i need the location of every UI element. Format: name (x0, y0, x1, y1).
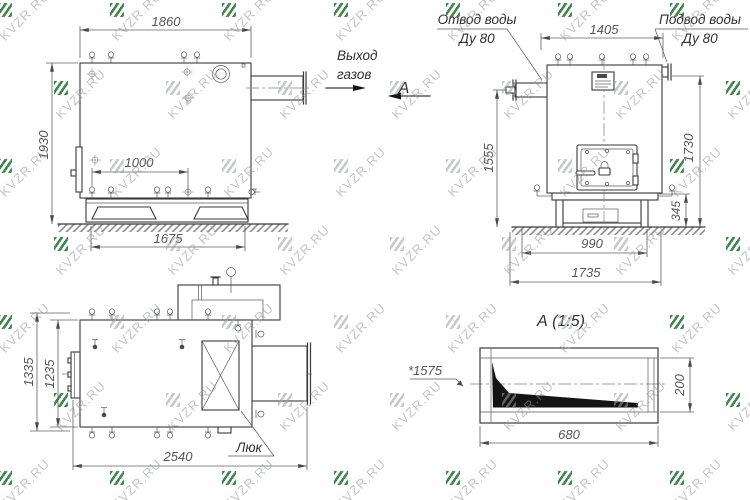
dim-front-base-height: 345 (669, 201, 683, 221)
water-inlet-label-1: Подвод воды (659, 12, 741, 27)
dim-front-overall-width: 1735 (572, 265, 602, 280)
dim-front-left-height: 1555 (481, 143, 496, 173)
valve-icon (154, 309, 160, 320)
valve-icon (89, 427, 95, 438)
water-outlet-label-1: Отвод воды (438, 12, 517, 27)
nameplate (592, 72, 614, 90)
front-view: Отвод воды Ду 80 Подвод воды Ду 80 1405 … (437, 12, 748, 286)
annotations: Выход газов А (326, 48, 430, 100)
gas-flow-arrow-icon (353, 85, 366, 91)
dim-detail-ref: *1575 (408, 363, 443, 378)
dim-side-height: 1930 (36, 130, 51, 160)
valve-icon (109, 427, 115, 438)
valve-icon (181, 52, 187, 63)
valve-icon (109, 309, 115, 320)
door-handle (576, 171, 595, 175)
valve-icon (643, 54, 649, 65)
side-view: 1860 1930 1000 1675 (36, 14, 312, 251)
dim-side-base: 1675 (154, 231, 184, 246)
drawing-page: 1860 1930 1000 1675 Выход газов А (0, 0, 750, 500)
valve-icon (567, 54, 573, 65)
drawing-canvas: 1860 1930 1000 1675 Выход газов А (0, 0, 750, 500)
valve-icon (534, 185, 540, 196)
valve-icon (167, 427, 173, 438)
valve-icon (154, 427, 160, 438)
valve-icon (89, 309, 95, 320)
dim-plan-body-width: 1235 (42, 359, 57, 389)
dim-plan-overall-width: 1335 (21, 357, 36, 387)
furnace-door (576, 145, 638, 190)
ground-hatch (512, 227, 705, 235)
detail-view: А (1:5) *1575 680 200 (408, 313, 694, 447)
hatch-label: Люк (235, 440, 262, 455)
hatch (202, 341, 239, 410)
dim-side-span: 1000 (125, 155, 155, 170)
grate-wedge (492, 362, 638, 408)
dim-front-width: 1405 (590, 22, 620, 37)
dim-plan-length: 2540 (163, 449, 194, 464)
dim-detail-height: 200 (672, 373, 687, 396)
valve-icon (555, 54, 561, 65)
water-inlet-label-2: Ду 80 (680, 31, 718, 46)
view-letter-label: А (398, 80, 410, 97)
gas-outlet-label-1: Выход (337, 48, 378, 63)
valve-icon (630, 54, 636, 65)
dim-front-right-height: 1730 (681, 133, 696, 163)
dim-side-width: 1860 (152, 14, 182, 29)
valve-icon (205, 427, 211, 438)
valve-icon (89, 52, 95, 63)
dim-front-support-span: 990 (581, 236, 603, 251)
water-outlet-label-2: Ду 80 (457, 31, 495, 46)
valve-icon (167, 309, 173, 320)
plan-view: 1235 1335 2540 Люк (21, 268, 312, 471)
gas-outlet-label-2: газов (337, 67, 371, 82)
detail-title: А (1:5) (536, 313, 585, 330)
valve-icon (108, 52, 114, 63)
thermometer-icon (227, 268, 236, 277)
valve-icon (194, 52, 200, 63)
dim-detail-length: 680 (558, 427, 580, 442)
